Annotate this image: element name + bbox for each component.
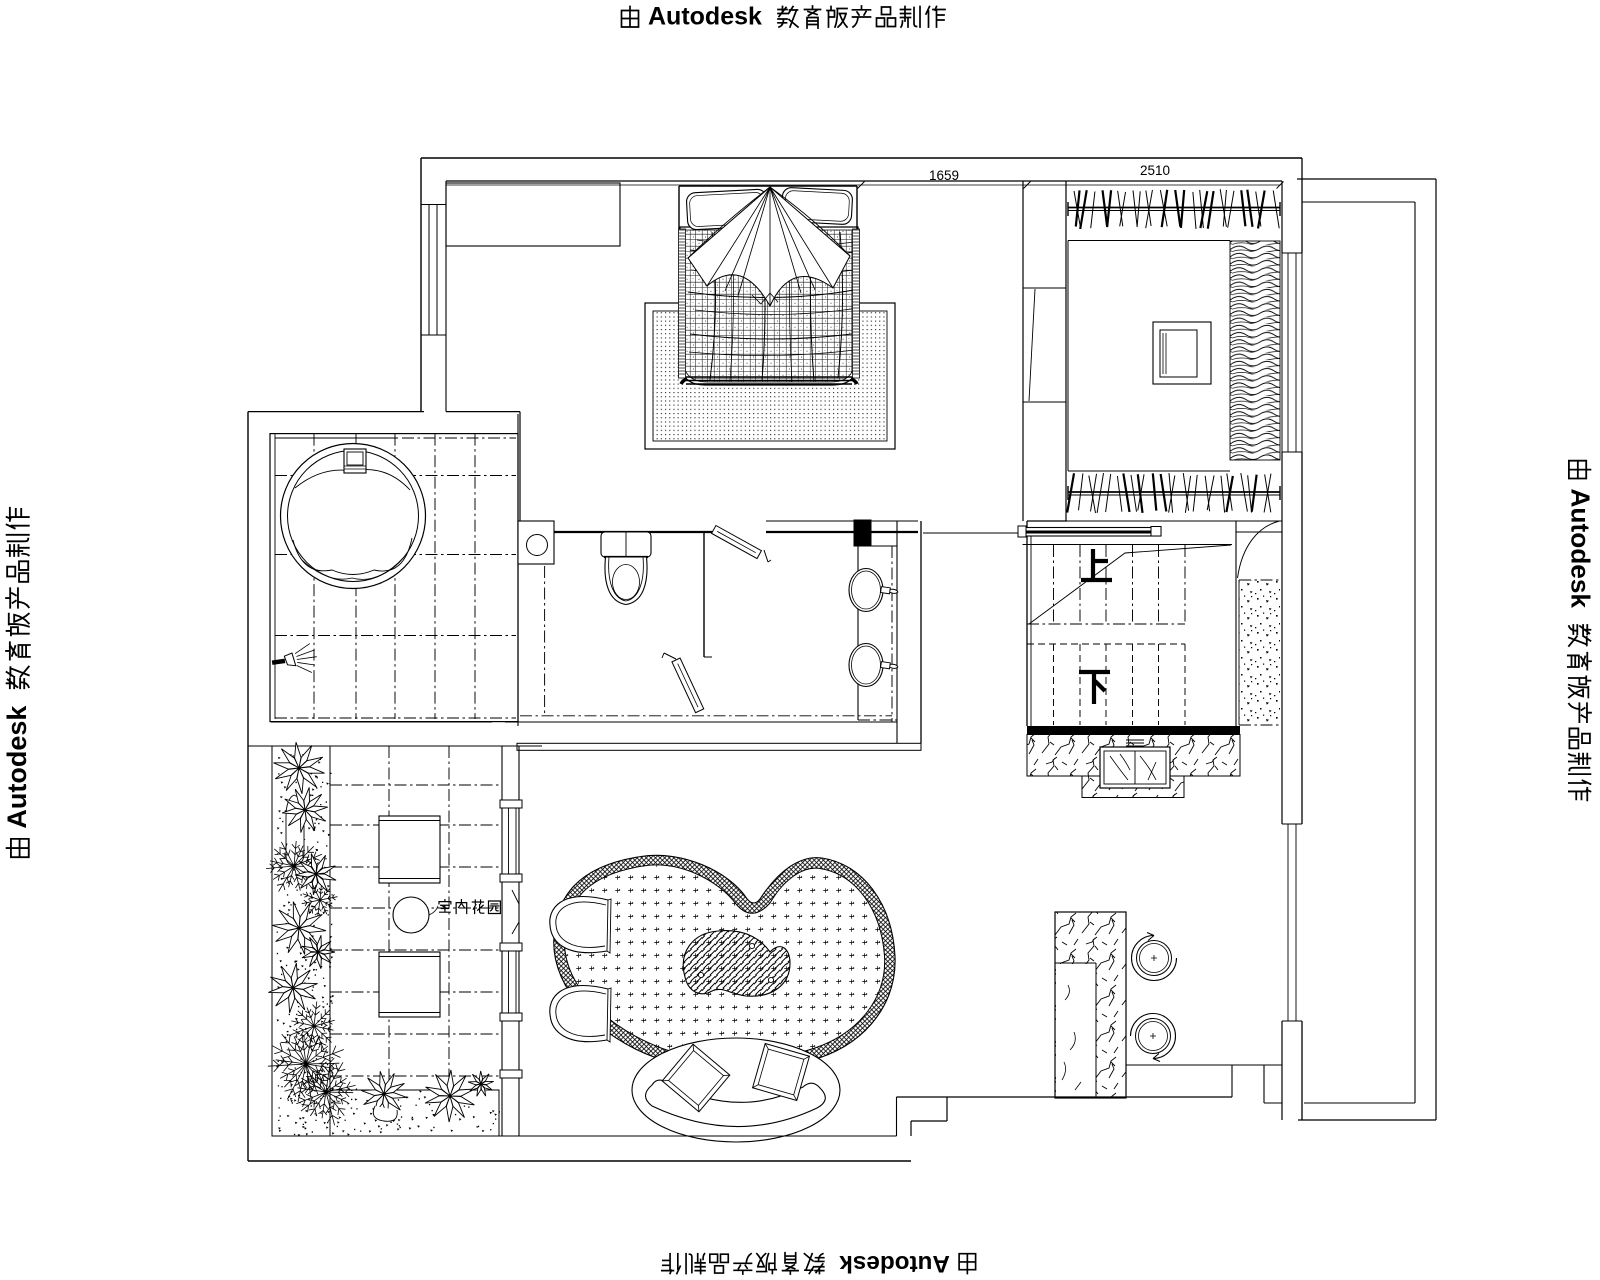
svg-text:Autodesk: Autodesk xyxy=(2,705,32,829)
svg-text:1659: 1659 xyxy=(929,168,959,183)
svg-text:Autodesk: Autodesk xyxy=(839,1250,950,1277)
svg-text:Autodesk: Autodesk xyxy=(648,3,762,31)
svg-text:2510: 2510 xyxy=(1140,163,1170,178)
svg-text:Autodesk: Autodesk xyxy=(1566,489,1596,609)
